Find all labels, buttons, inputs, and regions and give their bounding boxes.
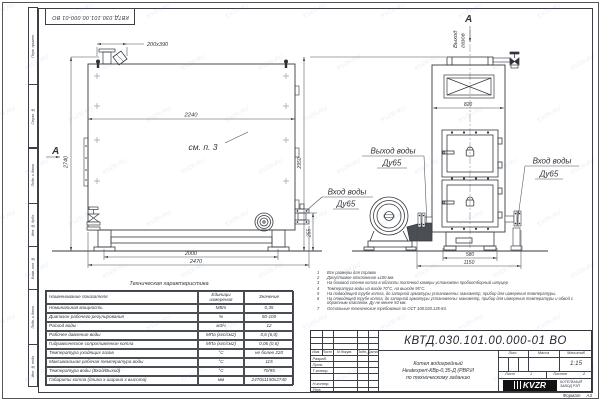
water-inlet-flange-icon — [505, 211, 522, 250]
water-outlet-label-2: Ду65 — [382, 159, 402, 168]
dim-base-label: 2000 — [184, 251, 198, 257]
front-dimensions — [46, 44, 373, 268]
dim-inlet-height-label: 255 — [307, 229, 313, 239]
anchor-cross-icon — [94, 73, 289, 184]
water-inlet-label-1: Вход воды — [533, 157, 572, 166]
gas-outlet-label-1: Выход — [453, 30, 459, 48]
water-inlet-label-2: Ду65 — [539, 170, 559, 179]
see-note-label: см. п. 3 — [189, 142, 218, 152]
gas-outlet-label-2: газов — [461, 33, 467, 48]
burner-flange-icon — [255, 213, 273, 231]
air-valve-icon — [510, 52, 519, 68]
water-outlet-label-1: Выход воды — [371, 147, 416, 156]
front-view — [52, 49, 322, 251]
chimney-stub-icon — [99, 49, 127, 65]
front-inlet-label-2: Ду65 — [336, 200, 356, 209]
dim-overall-label: 2470 — [189, 259, 203, 265]
dim-side-height-label: 2950 — [297, 157, 303, 169]
drawing-sheet: Перв. примен. Справ. № Подп. и дата Инв.… — [0, 0, 600, 400]
drawing-canvas: 200х390 2240 2740 см. п. 3 А 2000 2470 2… — [0, 0, 600, 400]
side-dimension-labels: А Выход газов 820 2950 580 1150 Выход во… — [297, 14, 572, 266]
lower-door — [442, 180, 502, 227]
upper-door — [442, 130, 502, 177]
dim-side-overall-label: 1150 — [464, 260, 475, 266]
front-inlet-label-1: Вход воды — [328, 188, 367, 197]
dim-height-label: 2740 — [64, 155, 70, 169]
dim-side-base-label: 580 — [466, 252, 475, 258]
side-view — [352, 30, 548, 251]
dim-port-label: 200х390 — [146, 42, 169, 48]
view-arrow-label: А — [51, 146, 59, 157]
front-supports — [94, 230, 289, 251]
dim-top-width-label: 820 — [464, 102, 473, 108]
side-dimensions — [304, 26, 579, 269]
gas-outlet-icon — [447, 57, 510, 65]
inlet-flange-icon — [295, 204, 309, 224]
dim-width-label: 2240 — [184, 113, 199, 119]
drain-valve-icon — [87, 207, 100, 230]
side-view-arrow-label: А — [464, 14, 472, 25]
explosion-hatch-icon — [444, 75, 494, 98]
